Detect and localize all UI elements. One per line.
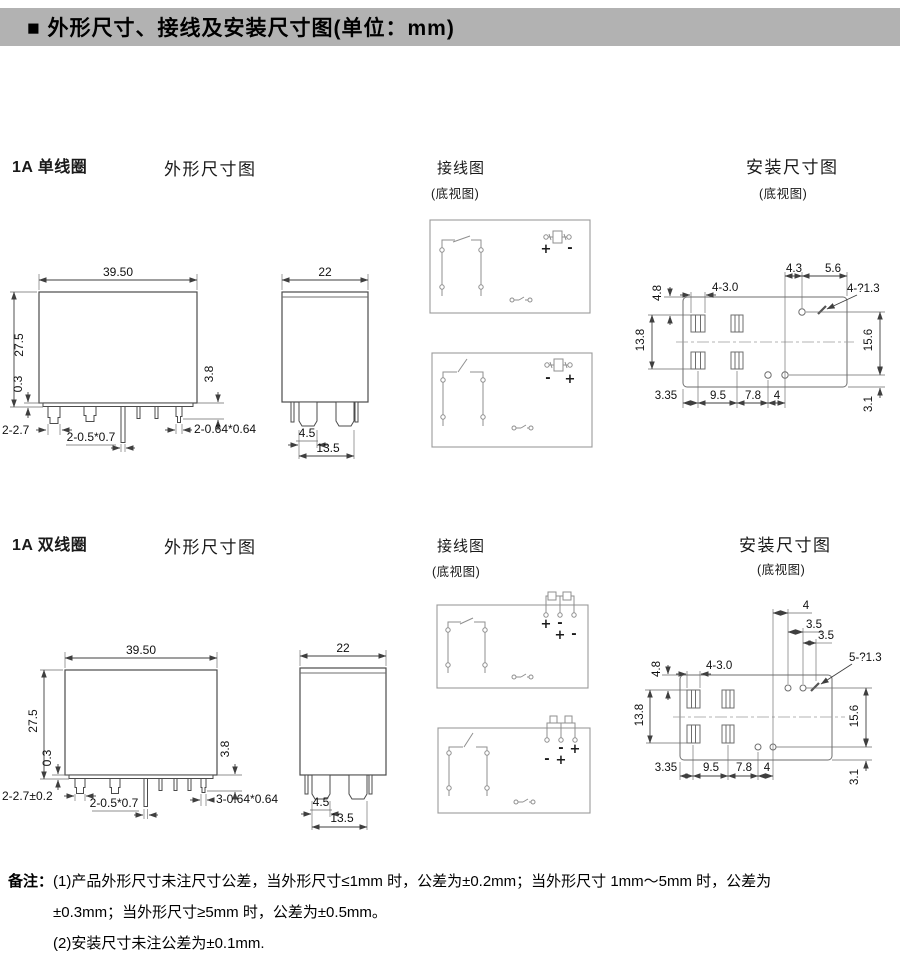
dim-side-width: 22 <box>336 641 350 655</box>
dim-mount-slots: 4-3.0 <box>712 282 738 294</box>
dim-front-pin-mid: 2-0.5*0.7 <box>67 430 116 444</box>
dim-front-pin-length: 3.8 <box>202 365 216 382</box>
dim-front-width: 39.50 <box>126 643 156 657</box>
dim-side-pin-span: 13.5 <box>316 441 340 455</box>
coil-polarity-plus: + <box>565 372 576 387</box>
row1-wiring-diagram-bottom: - + <box>432 353 592 447</box>
dim-front-pin-left: 2-2.7±0.2 <box>2 789 53 803</box>
coil-polarity-minus: - <box>567 241 572 256</box>
coil2-minus: - <box>544 752 549 767</box>
row2-wiring-diagram-top: + - + - <box>437 592 588 688</box>
dim-side-pin-width: 4.5 <box>299 426 316 440</box>
dim-front-standoff: 0.3 <box>40 749 54 766</box>
dim-mount-top1: 4 <box>803 600 810 612</box>
dim-front-width: 39.50 <box>103 265 133 279</box>
dim-mount-b3: 7.8 <box>745 390 761 402</box>
dim-mount-holes: 5-?1.3 <box>849 652 882 664</box>
dim-front-pin-left: 2-2.7 <box>2 423 30 437</box>
row2-front-view-drawing: 39.50 27.5 0.3 3.8 2-2.7±0.2 2-0.5*0. <box>2 643 278 819</box>
dim-mount-b4: 4 <box>774 390 781 402</box>
dim-mount-b2: 9.5 <box>703 762 719 774</box>
dim-mount-slots: 4-3.0 <box>706 660 732 672</box>
dim-mount-b4: 4 <box>764 762 771 774</box>
notes-block: 备注： (1)产品外形尺寸未注尺寸公差，当外形尺寸≤1mm 时，公差为±0.2m… <box>8 866 771 955</box>
datasheet-page: ■ 外形尺寸、接线及安装尺寸图(单位：mm) 1A 单线圈 外形尺寸图 接线图 … <box>0 0 900 955</box>
coil2-minus: - <box>571 627 576 642</box>
coil-polarity-minus: - <box>545 371 550 386</box>
dim-mount-left-top: 4.8 <box>651 661 663 677</box>
dim-front-pin-length: 3.8 <box>218 740 232 757</box>
dim-mount-left-top: 4.8 <box>652 285 664 301</box>
dim-mount-right-side: 15.6 <box>863 329 875 351</box>
coil2-plus: + <box>556 753 567 768</box>
coil2-plus: + <box>555 628 566 643</box>
dim-mount-b1: 3.35 <box>655 390 677 402</box>
dim-mount-top1: 4.3 <box>786 263 802 275</box>
dim-mount-top2: 5.6 <box>825 263 841 275</box>
dim-mount-right-side: 15.6 <box>849 705 861 727</box>
dim-mount-holes: 4-?1.3 <box>847 283 880 295</box>
row2-mounting-diagram: 4 3.5 3.5 5-?1.3 4-3.0 4.8 13.8 <box>634 600 882 785</box>
dim-front-height: 27.5 <box>12 333 26 357</box>
coil1-plus: + <box>570 742 581 757</box>
dim-front-pin-mid: 2-0.5*0.7 <box>90 796 139 810</box>
row1-wiring-diagram-top: + - <box>430 220 590 313</box>
dim-mount-top3: 3.5 <box>818 630 834 642</box>
dim-side-pin-width: 4.5 <box>313 795 330 809</box>
dim-mount-b2: 9.5 <box>710 390 726 402</box>
notes-label: 备注： <box>8 866 53 955</box>
dim-mount-right-bottom: 3.1 <box>849 769 861 785</box>
note-line-3: (2)安装尺寸未注公差为±0.1mm. <box>53 928 771 955</box>
technical-drawing-canvas: 39.50 27.5 0.3 3.8 2-2.7 2-0.5*0.7 <box>0 0 900 955</box>
row2-wiring-diagram-bottom: - + - + <box>438 716 590 813</box>
dim-side-width: 22 <box>318 265 332 279</box>
dim-mount-left-side: 13.8 <box>634 704 646 726</box>
dim-mount-left-side: 13.8 <box>635 329 647 351</box>
coil1-plus: + <box>541 617 552 632</box>
dim-front-height: 27.5 <box>26 709 40 733</box>
note-line-2: ±0.3mm；当外形尺寸≥5mm 时，公差为±0.5mm。 <box>53 897 771 928</box>
dim-mount-b3: 7.8 <box>736 762 752 774</box>
dim-mount-b1: 3.35 <box>655 762 677 774</box>
dim-mount-right-bottom: 3.1 <box>863 396 875 412</box>
row1-mounting-diagram: 4.3 5.6 4-?1.3 4-3.0 4.8 13.8 <box>635 263 885 412</box>
row1-side-view-drawing: 22 4.5 13.5 <box>282 265 368 459</box>
coil-polarity-plus: + <box>541 242 552 257</box>
row1-front-view-drawing: 39.50 27.5 0.3 3.8 2-2.7 2-0.5*0.7 <box>2 265 256 452</box>
dim-front-pin-right: 3-0.64*0.64 <box>216 792 278 806</box>
dim-front-standoff: 0.3 <box>11 375 25 392</box>
dim-side-pin-span: 13.5 <box>330 811 354 825</box>
row2-side-view-drawing: 22 4.5 13.5 <box>300 641 386 830</box>
dim-front-pin-right: 2-0.64*0.64 <box>194 422 256 436</box>
note-line-1: (1)产品外形尺寸未注尺寸公差，当外形尺寸≤1mm 时，公差为±0.2mm；当外… <box>53 866 771 897</box>
